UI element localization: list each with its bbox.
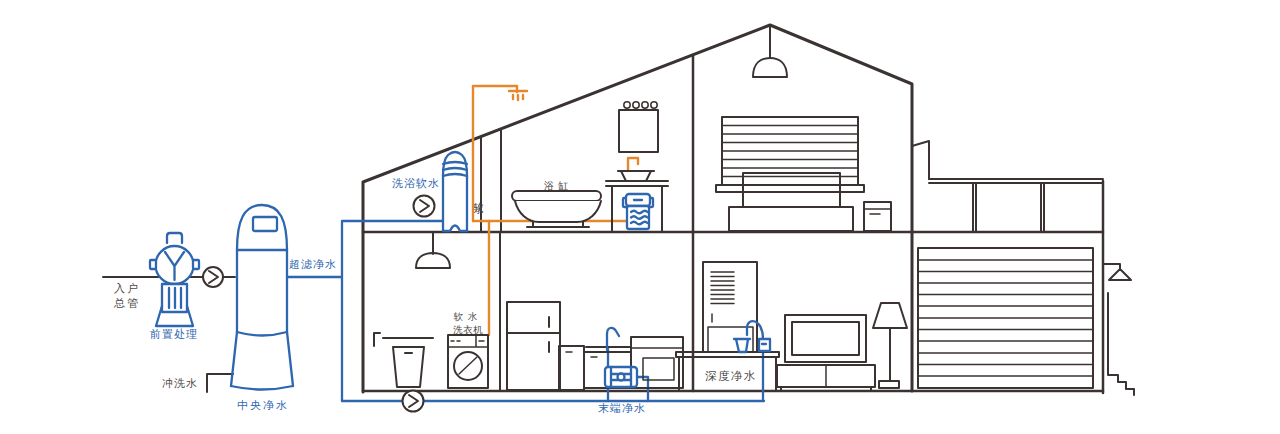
ro-unit-device	[605, 367, 637, 387]
laundry-pendant-lamp-icon	[416, 253, 450, 268]
label-prefilter: 前置处理	[150, 327, 198, 342]
label-bathtub: 浴缸	[544, 178, 572, 193]
washing-machine	[448, 335, 488, 388]
floor-lamp-icon	[873, 303, 907, 381]
bathtub-bowl	[515, 201, 601, 222]
pendant-lamp-icon	[753, 58, 787, 77]
exterior-light-icon	[1103, 264, 1131, 280]
label-inlet-main: 入户 总管	[114, 281, 140, 311]
living-room	[777, 303, 907, 391]
garage-terrace	[912, 141, 1134, 395]
kitchen	[507, 302, 683, 390]
diagram-line-art	[0, 0, 1280, 434]
central-tank-body	[237, 205, 287, 332]
bath-softener-device	[443, 152, 467, 231]
label-flush-water: 冲洗水	[162, 376, 198, 391]
bathroom-mirror	[619, 110, 658, 152]
blinds-slats	[722, 126, 858, 177]
label-central-purifier: 中央净水	[237, 398, 289, 413]
bedroom	[716, 27, 891, 231]
central-tank-skirt	[231, 332, 293, 390]
label-soft-water: 软水	[471, 194, 486, 198]
mirror-lights-icon	[624, 102, 657, 108]
fridge-doors	[507, 317, 560, 352]
terrace-edge-roof	[912, 141, 929, 179]
flush-drain-pipe	[207, 374, 233, 392]
central-tank-skirt-top	[237, 332, 287, 336]
prefilter-cap	[167, 233, 182, 243]
bed-mattress	[729, 207, 853, 231]
vanity-sink	[618, 171, 654, 181]
label-ultrafiltration: 超滤净水	[289, 257, 337, 272]
terrace-railing-top	[929, 179, 1103, 183]
garage-door-slats	[918, 260, 1093, 376]
vanity-faucet-icon	[628, 158, 638, 171]
water-cup-icon	[734, 339, 750, 352]
cabinet-vents	[711, 272, 734, 304]
under-sink-heater-device	[623, 194, 653, 229]
check-valve-icon	[414, 196, 435, 217]
bed-headboard	[743, 173, 840, 207]
nightstand-drawer	[864, 209, 891, 214]
floor-lamp-base	[879, 381, 899, 388]
terrace-railing-posts	[973, 183, 1044, 232]
fridge	[507, 302, 560, 390]
label-bath-softener: 洗浴软水	[392, 176, 440, 191]
label-deep-purifier: 深度净水	[705, 369, 757, 384]
prefilter-ear-right	[193, 260, 199, 269]
window-sill	[716, 185, 864, 192]
tv-screen	[792, 322, 859, 355]
laundry-hamper	[393, 347, 424, 387]
bathroom	[512, 102, 668, 232]
nightstand	[864, 202, 891, 231]
shower-spray-icon	[513, 95, 523, 100]
dispenser-gooseneck-faucet-icon	[747, 321, 763, 339]
water-purification-house-diagram: 入户 总管 前置处理 中央净水 冲洗水 超滤净水 洗浴软水 软水 浴缸 软水 洗…	[0, 0, 1280, 434]
label-soft-washer: 软水 洗衣机	[448, 310, 488, 336]
central-purifier-device	[231, 205, 293, 390]
shower-soft-pipe	[473, 86, 517, 221]
outdoor-steps	[1108, 293, 1134, 395]
prefilter-device	[150, 233, 199, 326]
prefilter-ear-left	[150, 260, 156, 269]
check-valve-icon	[403, 391, 424, 412]
laundry-shelf	[374, 333, 433, 346]
check-valve-icon	[203, 267, 223, 287]
label-terminal-purifier: 末端净水	[598, 401, 646, 416]
